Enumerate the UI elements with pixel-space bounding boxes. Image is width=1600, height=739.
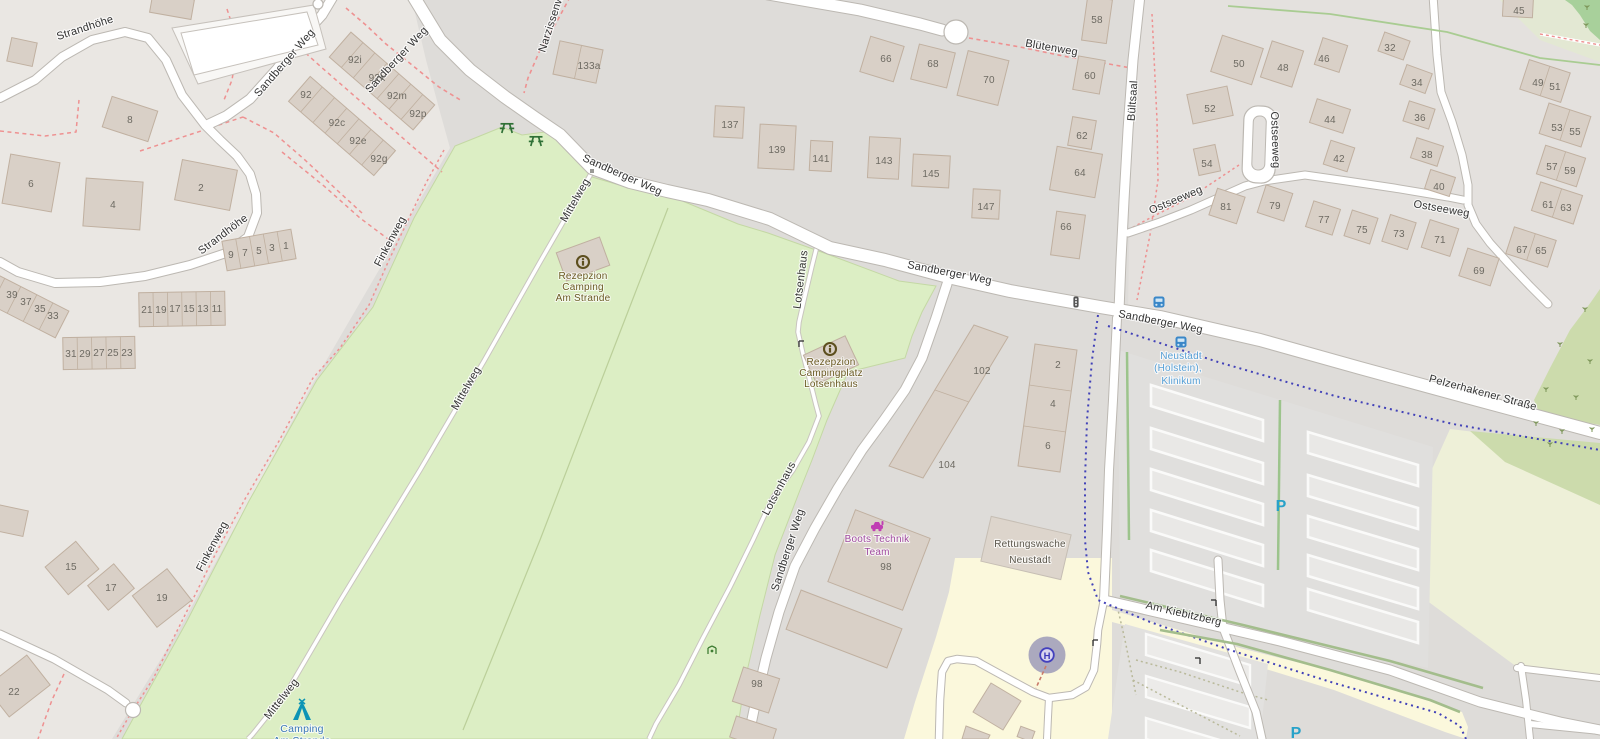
svg-text:59: 59 xyxy=(1564,166,1576,177)
svg-text:Rezepzion: Rezepzion xyxy=(558,271,607,282)
svg-text:15: 15 xyxy=(183,304,195,315)
svg-text:Camping: Camping xyxy=(562,282,603,293)
svg-text:Neustadt: Neustadt xyxy=(1009,555,1051,566)
svg-text:137: 137 xyxy=(721,120,739,131)
svg-text:22: 22 xyxy=(8,687,20,698)
svg-text:52: 52 xyxy=(1204,104,1216,115)
svg-text:39: 39 xyxy=(6,290,18,301)
svg-text:98: 98 xyxy=(880,562,892,573)
svg-text:6: 6 xyxy=(28,179,34,190)
svg-text:133a: 133a xyxy=(577,61,600,72)
svg-text:Camping: Camping xyxy=(280,723,323,735)
svg-text:64: 64 xyxy=(1074,168,1086,179)
svg-text:27: 27 xyxy=(93,348,105,359)
svg-text:35: 35 xyxy=(34,304,46,315)
svg-text:63: 63 xyxy=(1560,203,1572,214)
svg-text:8: 8 xyxy=(127,115,133,126)
svg-text:Rezepzion: Rezepzion xyxy=(806,357,855,368)
svg-text:H: H xyxy=(1044,651,1051,662)
svg-text:45: 45 xyxy=(1513,6,1525,17)
svg-text:9: 9 xyxy=(228,250,234,261)
svg-text:49: 49 xyxy=(1532,78,1544,89)
svg-text:61: 61 xyxy=(1542,200,1554,211)
svg-text:36: 36 xyxy=(1414,113,1426,124)
svg-text:62: 62 xyxy=(1076,131,1088,142)
svg-text:98: 98 xyxy=(751,679,763,690)
svg-text:3: 3 xyxy=(269,243,275,254)
svg-text:19: 19 xyxy=(156,593,168,604)
svg-text:70: 70 xyxy=(983,75,995,86)
svg-text:92i: 92i xyxy=(348,55,362,66)
svg-text:17: 17 xyxy=(105,583,117,594)
svg-text:92k: 92k xyxy=(369,73,387,84)
svg-text:42: 42 xyxy=(1333,154,1345,165)
svg-text:P: P xyxy=(1291,725,1302,739)
svg-text:79: 79 xyxy=(1269,201,1281,212)
svg-text:139: 139 xyxy=(768,145,786,156)
svg-text:57: 57 xyxy=(1546,162,1558,173)
svg-text:92: 92 xyxy=(300,90,312,101)
svg-text:Klinikum: Klinikum xyxy=(1161,376,1200,387)
svg-text:50: 50 xyxy=(1233,59,1245,70)
svg-text:81: 81 xyxy=(1220,202,1232,213)
svg-text:Ostseeweg: Ostseeweg xyxy=(1268,111,1282,168)
svg-text:2: 2 xyxy=(1055,360,1061,371)
svg-text:73: 73 xyxy=(1393,229,1405,240)
svg-text:143: 143 xyxy=(875,156,893,167)
svg-text:48: 48 xyxy=(1277,63,1289,74)
svg-text:51: 51 xyxy=(1549,82,1561,93)
svg-text:77: 77 xyxy=(1318,215,1330,226)
svg-text:67: 67 xyxy=(1516,245,1528,256)
svg-text:53: 53 xyxy=(1551,123,1563,134)
svg-text:17: 17 xyxy=(169,304,181,315)
svg-text:69: 69 xyxy=(1473,266,1485,277)
svg-text:75: 75 xyxy=(1356,225,1368,236)
svg-text:147: 147 xyxy=(977,202,995,213)
svg-text:19: 19 xyxy=(155,305,167,316)
svg-text:21: 21 xyxy=(141,305,153,316)
svg-text:23: 23 xyxy=(121,348,133,359)
svg-text:(Holstein),: (Holstein), xyxy=(1154,363,1202,374)
svg-text:55: 55 xyxy=(1569,127,1581,138)
svg-text:4: 4 xyxy=(1050,399,1056,410)
svg-text:13: 13 xyxy=(197,304,209,315)
svg-text:11: 11 xyxy=(212,304,223,315)
svg-text:33: 33 xyxy=(47,311,59,322)
svg-text:34: 34 xyxy=(1411,78,1423,89)
svg-text:32: 32 xyxy=(1384,43,1396,54)
svg-text:31: 31 xyxy=(65,349,77,360)
svg-text:29: 29 xyxy=(79,349,91,360)
svg-text:1: 1 xyxy=(283,241,289,252)
svg-text:92c: 92c xyxy=(329,118,346,129)
svg-text:15: 15 xyxy=(65,562,77,573)
svg-text:Lotsenhaus: Lotsenhaus xyxy=(804,379,858,390)
svg-text:46: 46 xyxy=(1318,54,1330,65)
svg-text:Campingplatz: Campingplatz xyxy=(799,368,863,379)
svg-text:25: 25 xyxy=(107,348,119,359)
svg-text:92e: 92e xyxy=(349,136,367,147)
svg-text:104: 104 xyxy=(938,460,956,471)
svg-text:141: 141 xyxy=(812,154,830,165)
svg-text:44: 44 xyxy=(1324,115,1336,126)
svg-text:58: 58 xyxy=(1091,15,1103,26)
svg-text:5: 5 xyxy=(256,246,262,257)
svg-text:6: 6 xyxy=(1045,441,1051,452)
svg-text:92g: 92g xyxy=(370,154,387,165)
svg-text:Boots Technik: Boots Technik xyxy=(845,534,910,545)
svg-text:60: 60 xyxy=(1084,71,1096,82)
svg-text:68: 68 xyxy=(927,59,939,70)
svg-text:71: 71 xyxy=(1434,235,1446,246)
svg-text:65: 65 xyxy=(1535,246,1547,257)
svg-text:102: 102 xyxy=(973,366,991,377)
svg-text:Rettungswache: Rettungswache xyxy=(994,539,1066,550)
svg-text:4: 4 xyxy=(110,200,116,211)
svg-text:66: 66 xyxy=(880,54,892,65)
svg-text:Neustadt: Neustadt xyxy=(1160,351,1202,362)
svg-text:2: 2 xyxy=(198,183,204,194)
svg-text:92p: 92p xyxy=(409,109,427,120)
svg-text:66: 66 xyxy=(1060,222,1072,233)
svg-text:40: 40 xyxy=(1433,182,1445,193)
svg-text:54: 54 xyxy=(1201,159,1213,170)
svg-text:38: 38 xyxy=(1421,150,1433,161)
svg-text:Am Strande: Am Strande xyxy=(556,293,611,304)
svg-text:145: 145 xyxy=(922,169,940,180)
svg-text:Team: Team xyxy=(864,547,889,558)
svg-text:37: 37 xyxy=(20,297,32,308)
svg-text:P: P xyxy=(1276,498,1287,515)
svg-text:Am Strande: Am Strande xyxy=(273,735,330,739)
svg-text:92m: 92m xyxy=(387,91,407,102)
svg-text:7: 7 xyxy=(242,248,248,259)
